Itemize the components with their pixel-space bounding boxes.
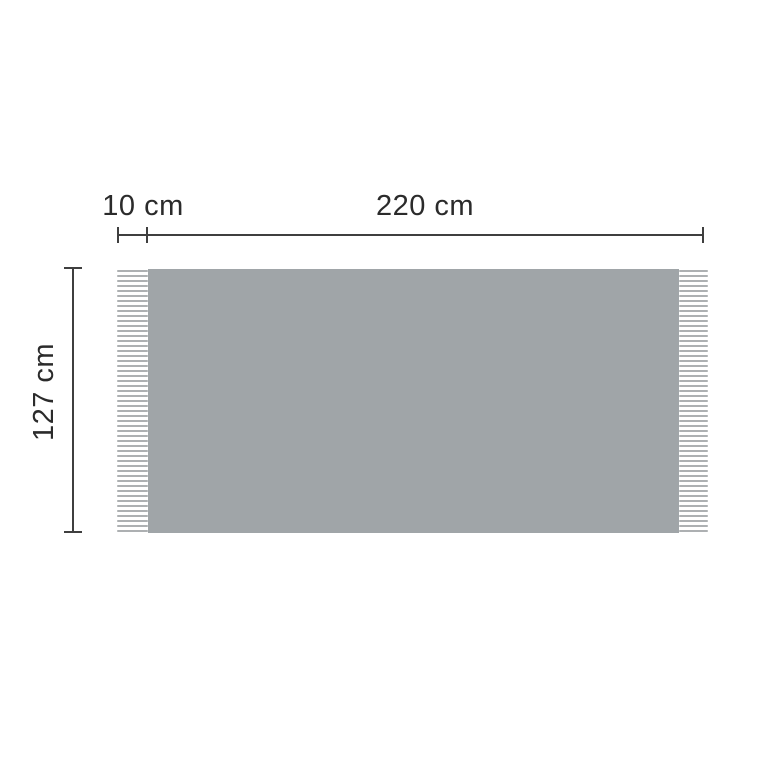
fringe-strand xyxy=(117,415,148,417)
fringe-strand xyxy=(117,510,148,512)
fringe-strand xyxy=(117,335,148,337)
fringe-strand xyxy=(679,505,708,507)
fringe-strand xyxy=(117,285,148,287)
fringe-strand xyxy=(117,525,148,527)
fringe-strand xyxy=(679,525,708,527)
fringe-strand xyxy=(679,455,708,457)
fringe-strand xyxy=(117,475,148,477)
fringe-strand xyxy=(117,500,148,502)
fringe-strand xyxy=(117,455,148,457)
fringe-strand xyxy=(117,430,148,432)
fringe-strand xyxy=(679,410,708,412)
fringe-strand xyxy=(679,450,708,452)
fringe-strand xyxy=(679,480,708,482)
right-fringe xyxy=(679,270,708,532)
fringe-strand xyxy=(117,480,148,482)
fringe-strand xyxy=(679,465,708,467)
fringe-strand xyxy=(117,380,148,382)
fringe-strand xyxy=(117,325,148,327)
height-dimension-line xyxy=(72,267,74,533)
fringe-strand xyxy=(679,365,708,367)
fringe-strand xyxy=(117,470,148,472)
fringe-strand xyxy=(679,305,708,307)
width-dimension-tick-right xyxy=(702,227,704,243)
fringe-strand xyxy=(117,490,148,492)
fringe-strand xyxy=(679,320,708,322)
fringe-strand xyxy=(679,440,708,442)
fringe-strand xyxy=(117,390,148,392)
fringe-strand xyxy=(679,510,708,512)
body-width-label: 220 cm xyxy=(376,191,474,223)
fringe-strand xyxy=(117,495,148,497)
fringe-strand xyxy=(679,520,708,522)
left-fringe xyxy=(117,270,148,532)
fringe-strand xyxy=(117,365,148,367)
fringe-strand xyxy=(117,345,148,347)
fringe-strand xyxy=(679,415,708,417)
fringe-strand xyxy=(117,420,148,422)
fringe-strand xyxy=(117,355,148,357)
fringe-strand xyxy=(117,465,148,467)
fringe-strand xyxy=(679,380,708,382)
fringe-strand xyxy=(117,350,148,352)
fringe-strand xyxy=(117,300,148,302)
fringe-strand xyxy=(117,435,148,437)
fringe-strand xyxy=(679,390,708,392)
fringe-strand xyxy=(679,355,708,357)
fringe-strand xyxy=(117,450,148,452)
fringe-strand xyxy=(117,270,148,272)
fringe-strand xyxy=(679,300,708,302)
fringe-strand xyxy=(117,340,148,342)
fringe-strand xyxy=(117,375,148,377)
fringe-strand xyxy=(679,500,708,502)
fringe-strand xyxy=(679,470,708,472)
fringe-strand xyxy=(679,350,708,352)
fringe-strand xyxy=(117,485,148,487)
fringe-strand xyxy=(679,485,708,487)
fringe-strand xyxy=(117,290,148,292)
fringe-strand xyxy=(117,405,148,407)
height-dimension-cap-bottom xyxy=(64,531,82,533)
fringe-strand xyxy=(679,490,708,492)
fringe-strand xyxy=(117,305,148,307)
blanket-body xyxy=(148,269,679,533)
fringe-strand xyxy=(679,460,708,462)
fringe-strand xyxy=(117,370,148,372)
fringe-strand xyxy=(679,425,708,427)
fringe-strand xyxy=(679,385,708,387)
fringe-strand xyxy=(117,400,148,402)
fringe-strand xyxy=(679,445,708,447)
fringe-strand xyxy=(117,275,148,277)
fringe-strand xyxy=(679,435,708,437)
fringe-strand xyxy=(679,395,708,397)
fringe-strand xyxy=(679,370,708,372)
fringe-strand xyxy=(117,310,148,312)
fringe-strand xyxy=(117,385,148,387)
fringe-strand xyxy=(117,440,148,442)
blanket-dimension-diagram: 10 cm 220 cm 127 cm xyxy=(0,0,768,768)
fringe-strand xyxy=(679,400,708,402)
fringe-strand xyxy=(117,445,148,447)
fringe-strand xyxy=(679,420,708,422)
fringe-strand xyxy=(117,410,148,412)
fringe-width-tick xyxy=(146,227,148,243)
fringe-strand xyxy=(679,290,708,292)
fringe-strand xyxy=(679,340,708,342)
fringe-strand xyxy=(679,325,708,327)
fringe-strand xyxy=(117,530,148,532)
width-dimension-tick-left xyxy=(117,227,119,243)
fringe-strand xyxy=(117,395,148,397)
fringe-strand xyxy=(679,360,708,362)
height-dimension-cap-top xyxy=(64,267,82,269)
fringe-strand xyxy=(679,345,708,347)
fringe-strand xyxy=(679,530,708,532)
fringe-strand xyxy=(679,330,708,332)
fringe-strand xyxy=(117,315,148,317)
fringe-strand xyxy=(117,520,148,522)
fringe-strand xyxy=(679,515,708,517)
fringe-strand xyxy=(679,275,708,277)
fringe-strand xyxy=(117,425,148,427)
fringe-strand xyxy=(679,335,708,337)
fringe-strand xyxy=(117,295,148,297)
fringe-strand xyxy=(679,475,708,477)
fringe-strand xyxy=(679,295,708,297)
fringe-strand xyxy=(679,315,708,317)
fringe-strand xyxy=(679,375,708,377)
fringe-strand xyxy=(117,280,148,282)
fringe-strand xyxy=(679,270,708,272)
fringe-strand xyxy=(117,505,148,507)
fringe-strand xyxy=(679,495,708,497)
fringe-strand xyxy=(679,430,708,432)
fringe-strand xyxy=(117,320,148,322)
fringe-strand xyxy=(679,310,708,312)
fringe-width-label: 10 cm xyxy=(102,191,183,223)
height-label: 127 cm xyxy=(29,343,61,441)
fringe-strand xyxy=(117,360,148,362)
width-dimension-line xyxy=(117,234,704,236)
fringe-strand xyxy=(679,285,708,287)
fringe-strand xyxy=(679,280,708,282)
fringe-strand xyxy=(117,515,148,517)
fringe-strand xyxy=(117,330,148,332)
fringe-strand xyxy=(117,460,148,462)
fringe-strand xyxy=(679,405,708,407)
